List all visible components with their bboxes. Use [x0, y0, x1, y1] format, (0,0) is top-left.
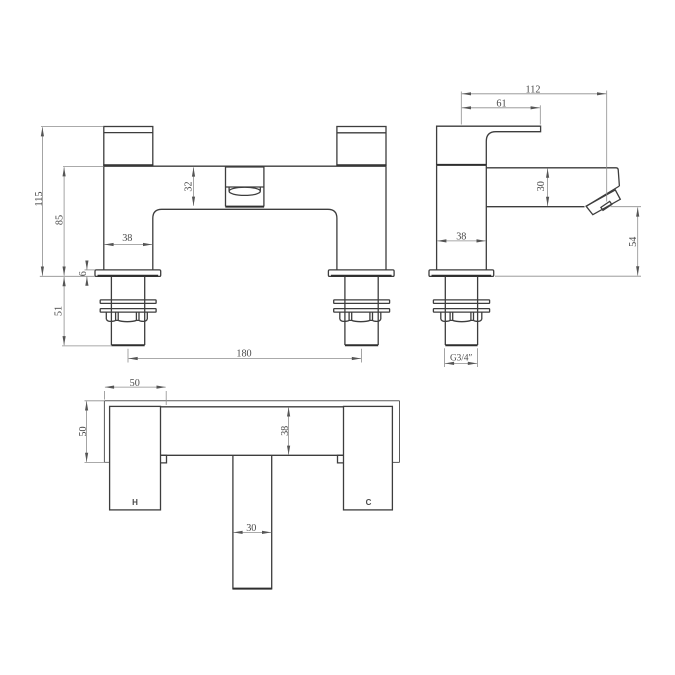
svg-text:50: 50: [78, 426, 89, 436]
svg-text:112: 112: [526, 84, 541, 95]
svg-text:G3/4″: G3/4″: [450, 353, 473, 363]
svg-text:6: 6: [78, 271, 89, 276]
svg-text:32: 32: [183, 181, 194, 191]
svg-text:C: C: [366, 498, 372, 507]
svg-text:30: 30: [536, 181, 547, 191]
svg-text:38: 38: [456, 232, 466, 243]
svg-text:38: 38: [280, 426, 291, 436]
svg-text:50: 50: [130, 378, 140, 389]
svg-text:54: 54: [628, 237, 639, 247]
svg-text:85: 85: [54, 215, 65, 225]
svg-text:180: 180: [236, 349, 251, 360]
svg-text:H: H: [132, 498, 138, 507]
svg-text:115: 115: [34, 192, 45, 207]
svg-text:38: 38: [122, 233, 132, 244]
svg-text:51: 51: [54, 306, 65, 316]
svg-text:61: 61: [496, 98, 506, 109]
svg-text:30: 30: [246, 523, 256, 534]
